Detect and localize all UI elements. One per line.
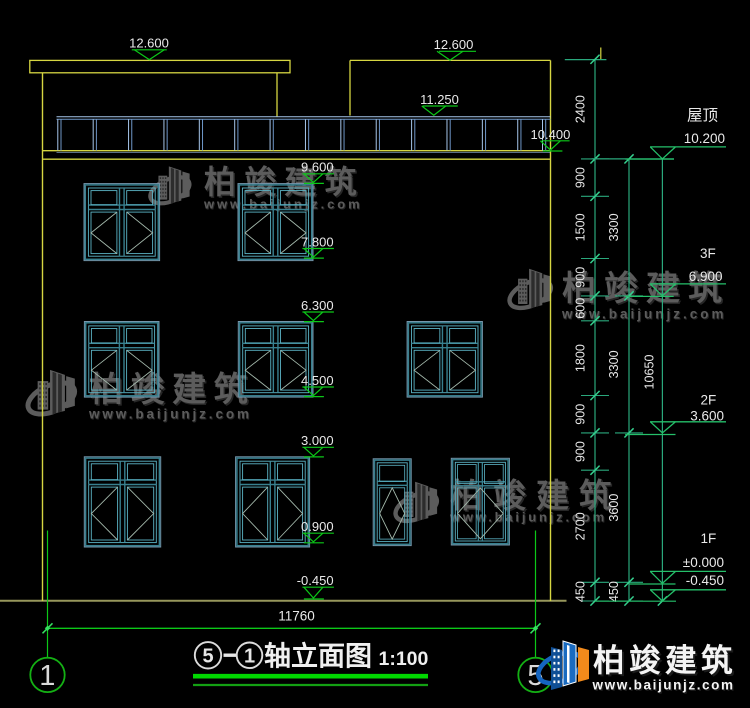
svg-text:柏竣建筑: 柏竣建筑 [204,164,365,200]
svg-text:900: 900 [574,441,588,462]
svg-text:6.900: 6.900 [689,269,723,284]
svg-text:柏竣建筑: 柏竣建筑 [593,642,737,678]
svg-text:6.300: 6.300 [301,298,334,313]
svg-text:3300: 3300 [607,350,621,378]
svg-text:900: 900 [574,267,588,288]
svg-text:11.250: 11.250 [420,92,459,107]
svg-text:4.500: 4.500 [301,373,334,388]
svg-text:10650: 10650 [643,354,657,389]
svg-text:柏竣建筑: 柏竣建筑 [89,370,255,409]
svg-text:10.400: 10.400 [531,127,571,142]
svg-text:±0.000: ±0.000 [683,555,724,570]
svg-text:11760: 11760 [278,609,315,624]
svg-text:2400: 2400 [574,95,588,123]
svg-text:0.900: 0.900 [301,519,334,534]
svg-text:3.600: 3.600 [690,408,724,423]
svg-text:1:100: 1:100 [379,648,429,670]
svg-text:450: 450 [574,581,588,602]
svg-text:3600: 3600 [607,494,621,522]
svg-text:www.baijunjz.com: www.baijunjz.com [592,678,735,693]
svg-text:3.000: 3.000 [301,433,334,448]
svg-text:轴立面图: 轴立面图 [264,641,372,672]
svg-text:600: 600 [574,298,588,319]
svg-text:450: 450 [607,581,621,602]
svg-text:3F: 3F [700,246,716,261]
svg-text:2F: 2F [701,393,717,408]
svg-text:1800: 1800 [574,344,588,372]
svg-text:-0.450: -0.450 [297,573,334,588]
svg-text:屋顶: 屋顶 [687,107,718,125]
svg-text:1: 1 [39,660,55,692]
svg-text:1: 1 [244,645,255,667]
svg-text:9.600: 9.600 [301,160,334,175]
svg-text:www.baijunjz.com: www.baijunjz.com [88,407,252,422]
svg-text:900: 900 [574,167,588,188]
svg-text:900: 900 [574,404,588,425]
svg-text:1F: 1F [701,531,717,546]
svg-text:12.600: 12.600 [434,37,474,52]
svg-text:3300: 3300 [607,213,621,241]
svg-text:-0.450: -0.450 [686,573,724,588]
svg-text:10.200: 10.200 [684,131,725,146]
svg-text:2700: 2700 [574,512,588,540]
svg-text:5: 5 [202,645,213,667]
svg-text:1500: 1500 [574,213,588,241]
svg-text:7.800: 7.800 [301,234,334,249]
svg-text:12.600: 12.600 [129,36,169,51]
